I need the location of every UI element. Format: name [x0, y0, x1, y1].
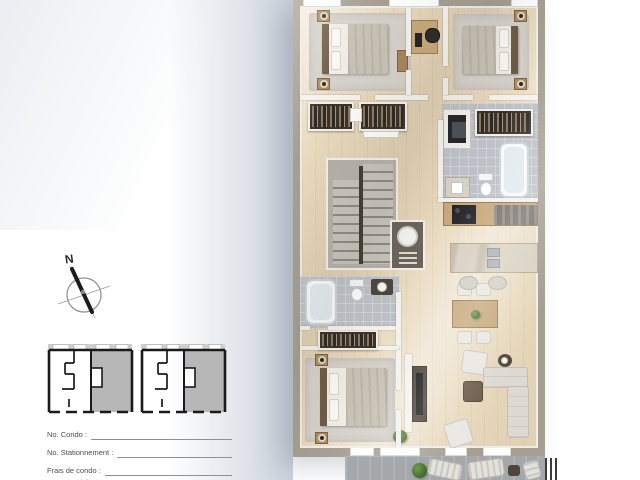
table-lamp: [320, 80, 328, 88]
north-label: N: [64, 252, 75, 267]
closet: [475, 109, 533, 136]
bathtub: [305, 279, 337, 325]
bed-blanket: [346, 368, 386, 426]
desk-monitor: [415, 33, 422, 47]
closet: [359, 102, 407, 131]
toilet-tank: [478, 173, 493, 181]
stair-railing: [359, 166, 363, 264]
tv-wall: [405, 354, 412, 432]
form-field-row: No. Stationnement :: [47, 444, 232, 458]
sofa: [507, 386, 529, 438]
closet: [318, 330, 378, 350]
table-plant: [471, 310, 480, 319]
nightstand: [315, 432, 328, 444]
main-floor-plan: [293, 0, 545, 457]
hanging-clothes: [363, 106, 403, 127]
round-sink: [397, 226, 418, 247]
bed-pillow: [329, 373, 339, 395]
wall: [489, 95, 538, 100]
balcony-railing: [545, 458, 558, 480]
form-field-row: Taxes scolaires :: [47, 474, 232, 480]
hanging-clothes: [312, 106, 350, 127]
window-bay: [511, 0, 538, 7]
compass-rose: N: [50, 250, 116, 324]
field-blank-line: [117, 448, 232, 458]
nightstand: [317, 78, 330, 90]
dining-chair: [457, 331, 472, 344]
burner: [466, 214, 471, 219]
dining-chair: [476, 331, 491, 344]
hanging-clothes: [479, 113, 529, 132]
bed-blanket: [462, 26, 496, 74]
sink: [451, 182, 463, 194]
bathtub-basin: [310, 284, 332, 320]
listing-sheet: N No. Condo : No. Stationnement :: [0, 0, 640, 480]
cooktop: [452, 205, 476, 224]
nightstand: [514, 10, 527, 22]
keyplan-notch: [91, 368, 102, 387]
table-lamp: [501, 357, 508, 364]
closet-shelf: [350, 108, 362, 122]
coffee-table: [463, 381, 483, 402]
wall: [300, 95, 360, 100]
bed: [320, 368, 386, 426]
console-shelf: [363, 131, 399, 138]
wall: [396, 292, 401, 350]
key-plan-thumbnail: [137, 341, 229, 421]
window-bay: [389, 0, 439, 7]
towel-rack: [399, 252, 417, 267]
burner: [455, 208, 460, 213]
bed-pillow: [499, 52, 509, 71]
stair-flight: [363, 164, 393, 264]
table-lamp: [517, 12, 525, 20]
sofa-chaise: [483, 367, 528, 388]
bar-stool: [459, 276, 478, 290]
bed-blanket: [348, 24, 388, 74]
desk-chair: [425, 28, 440, 43]
keyplan-inner-walls: [155, 350, 167, 407]
kitchen-island: [450, 243, 538, 273]
table-lamp: [517, 80, 525, 88]
island-sink: [487, 259, 500, 268]
wall: [443, 78, 448, 95]
wall: [396, 410, 401, 448]
sink: [377, 282, 387, 292]
wall: [443, 95, 473, 100]
toilet-tank: [349, 279, 364, 287]
table-lamp: [318, 434, 326, 442]
bed-pillow: [331, 28, 341, 47]
closet: [308, 102, 354, 131]
balcony-door: [445, 448, 467, 456]
table-lamp: [318, 356, 326, 364]
wall: [438, 198, 538, 202]
toilet: [480, 182, 492, 196]
balcony-table: [508, 465, 520, 476]
field-label-condo-number: No. Condo :: [47, 430, 91, 440]
wall: [328, 326, 399, 330]
nightstand: [514, 78, 527, 90]
wall: [396, 350, 401, 390]
stair-flight: [333, 180, 361, 264]
dining-table: [452, 300, 498, 328]
bar-stool: [488, 276, 507, 290]
bed-pillow: [329, 399, 339, 421]
keyplan-notch: [184, 368, 195, 387]
toilet: [351, 288, 363, 301]
window-bay: [303, 0, 341, 7]
washer: [443, 109, 471, 149]
balcony-plant: [412, 463, 427, 478]
wall: [300, 346, 318, 350]
counter-appliances: [494, 205, 537, 225]
key-plan-thumbnail: [44, 341, 136, 421]
keyplan-inner-walls: [62, 350, 74, 407]
wall: [438, 120, 443, 199]
side-table: [498, 354, 512, 367]
nightstand: [317, 10, 330, 22]
nightstand: [315, 354, 328, 366]
wall: [406, 6, 411, 56]
table-lamp: [320, 12, 328, 20]
staircase: [326, 158, 398, 270]
balcony-door: [350, 448, 374, 456]
compass-pivot: [81, 290, 85, 294]
kitchen-counter: [443, 202, 538, 226]
media-console: [412, 366, 427, 422]
bed-headboard: [511, 26, 518, 74]
bed: [322, 24, 388, 74]
field-label-parking-number: No. Stationnement :: [47, 448, 117, 458]
balcony-door: [483, 448, 511, 456]
bed-headboard: [320, 368, 327, 426]
balcony-door: [380, 448, 420, 456]
bed: [462, 26, 518, 74]
wall: [443, 6, 448, 66]
washer-door: [452, 122, 466, 138]
island-sink: [487, 248, 500, 257]
wall: [375, 95, 428, 100]
form-field-row: No. Condo :: [47, 426, 232, 440]
field-blank-line: [91, 430, 232, 440]
wall: [300, 326, 310, 330]
tv: [416, 373, 423, 415]
powder-room: [390, 220, 425, 270]
bed-headboard: [322, 24, 329, 74]
hanging-clothes: [322, 334, 374, 346]
bathroom-vanity: [371, 279, 393, 295]
wall: [406, 70, 411, 95]
bathroom-vanity: [445, 177, 470, 198]
bathtub: [499, 142, 529, 198]
bed-pillow: [499, 29, 509, 48]
bathtub-basin: [504, 147, 524, 193]
bed-pillow: [331, 51, 341, 70]
